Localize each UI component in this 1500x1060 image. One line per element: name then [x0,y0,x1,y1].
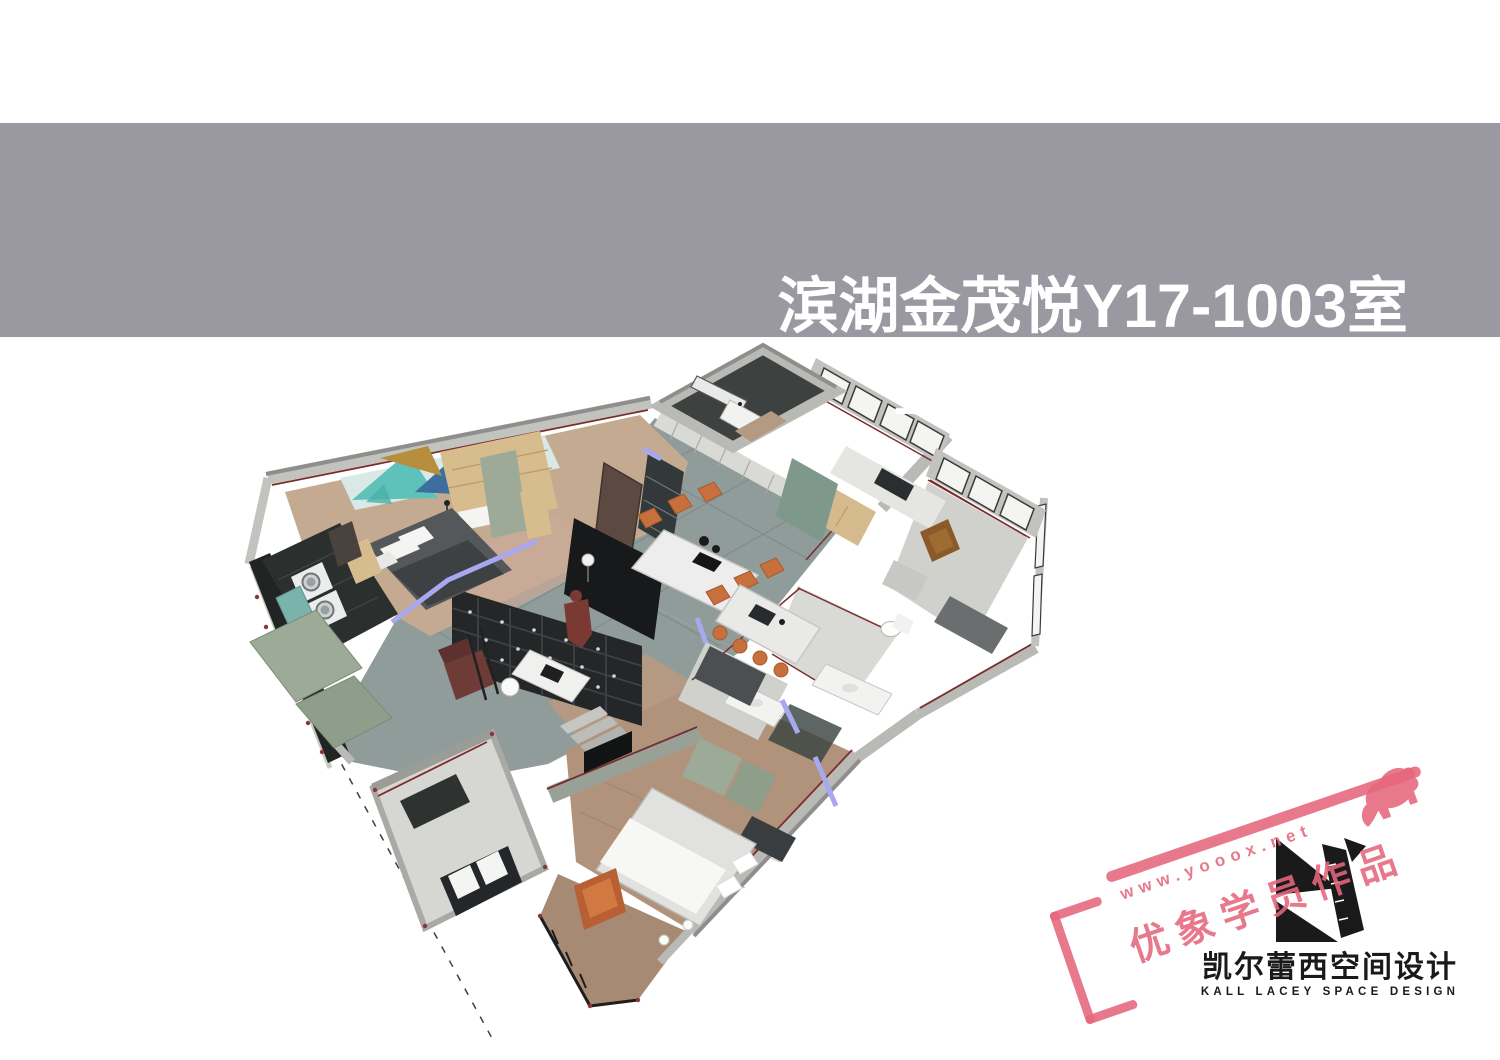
logo-name-cn: 凯尔蕾西空间设计 [1190,952,1470,984]
company-logo: 凯尔蕾西空间设计 KALL LACEY SPACE DESIGN [1180,818,1480,1018]
logo-name-en: KALL LACEY SPACE DESIGN [1190,986,1470,998]
project-title: 滨湖金茂悦Y17-1003室 [777,276,1408,337]
document-subtitle: 室内设计施工图纸 [893,360,1373,420]
k-ruler-logo-icon [1180,818,1480,948]
title-banner: 滨湖金茂悦Y17-1003室 室内设计施工图纸 [0,123,1500,337]
